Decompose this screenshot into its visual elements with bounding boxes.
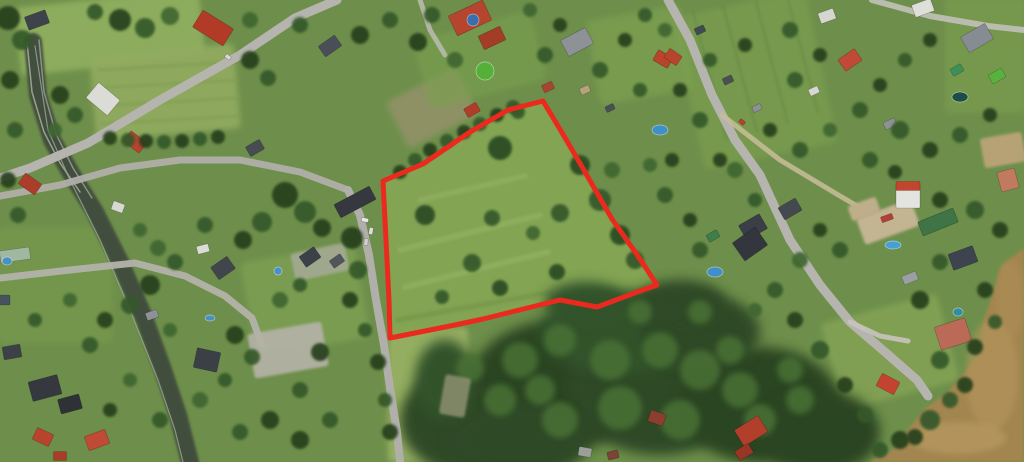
forest-canopy [544,324,576,356]
tree [787,312,803,328]
tree [342,292,358,308]
forest-canopy [628,300,652,324]
tree [713,153,727,167]
tree [967,339,983,355]
tree [811,341,829,359]
forest-canopy [502,342,538,378]
building-roof [364,238,369,245]
tree [252,212,272,232]
building-roof [361,217,369,222]
pool [952,92,968,102]
tree [931,351,949,369]
tree [87,4,103,20]
tree [447,52,463,68]
tree [692,242,708,258]
satellite-map [0,0,1024,462]
tree [673,83,687,97]
tree [313,219,331,237]
tree [139,134,153,148]
tree [665,153,679,167]
tree [526,226,540,240]
tree [643,158,657,172]
tree [82,337,98,353]
tree [873,78,887,92]
tree [244,349,260,365]
tree [618,33,632,47]
tree [292,382,308,398]
building-roof [368,227,373,235]
tree [63,293,77,307]
forest-canopy [590,340,630,380]
tree [888,165,902,179]
pool [707,267,723,277]
tree [852,102,868,118]
tree [862,152,878,168]
tree [763,123,777,137]
tree [0,172,16,188]
river-streak [996,260,1024,340]
tree [291,431,309,449]
tree [488,136,512,160]
forest-canopy [786,386,814,414]
tree [226,326,244,344]
forest-canopy [680,350,720,390]
tree [103,403,117,417]
tree [378,393,392,407]
tree [898,53,912,67]
tree [435,290,449,304]
tree [463,254,481,272]
tree [932,192,948,208]
tree [911,291,929,309]
tree [97,312,113,328]
tree [157,135,171,149]
tree [492,280,508,296]
pool [953,308,963,316]
tree [232,424,248,440]
aerial-photo [0,0,1024,462]
building-roof [0,295,10,305]
forest-canopy [642,332,678,368]
tree [657,187,673,203]
tree [242,12,258,28]
tree [983,108,997,122]
tree [163,323,177,337]
building-roof [578,446,592,457]
tree [633,83,647,97]
tree [272,292,288,308]
building-roof [2,344,22,360]
pool [476,62,494,80]
forest-canopy [542,402,578,438]
tree [813,48,827,62]
tree [727,162,743,178]
tree [923,33,937,47]
tree [551,204,569,222]
tree [638,8,652,22]
tree [537,47,553,63]
tree [382,12,398,28]
tree [748,193,762,207]
tree [192,392,208,408]
tree [484,210,500,226]
tree [703,53,717,67]
tree [193,132,207,146]
tree [952,127,968,143]
tree [549,264,565,280]
tree [767,282,783,298]
tree [683,213,697,227]
field-patch [0,228,113,343]
tree [891,121,909,139]
pool [2,257,12,265]
tree [977,282,993,298]
forest-canopy [777,357,803,383]
forest-canopy [598,386,642,430]
tree [167,254,183,270]
tree [341,227,363,249]
tree [988,315,1002,329]
building-roof [54,452,67,461]
tree [424,7,440,23]
pool [885,241,901,249]
tree [211,130,225,144]
tree [48,123,62,137]
tree [121,133,135,147]
tree [782,22,798,38]
tree [349,261,367,279]
tree [51,86,69,104]
forest-canopy [660,400,700,440]
tree [12,30,32,50]
tree [813,223,827,237]
tree [415,205,435,225]
tree [123,373,137,387]
tree [658,23,672,37]
tree [292,17,308,33]
pool [274,267,282,275]
tree [837,377,853,393]
tree [109,9,131,31]
tree [370,354,386,370]
tree [152,412,168,428]
tree [197,217,213,233]
forest-canopy [688,300,712,324]
tree [293,278,307,292]
tree [832,242,848,258]
tree [922,142,938,158]
tree [161,7,179,25]
forest-canopy [716,336,744,364]
tree [150,240,166,256]
pool [467,14,479,26]
tree [409,33,427,51]
tree [121,296,139,314]
tree [10,207,26,223]
tree [523,3,537,17]
tree [592,62,608,78]
tree [748,303,762,317]
tree [872,442,888,458]
tree [311,343,329,361]
tree [67,107,83,123]
tree [792,142,808,158]
tree [942,392,958,408]
tree [966,201,984,219]
tree [135,18,155,38]
tree [294,201,316,223]
tree [992,222,1008,238]
pool [652,125,668,135]
tree [1,71,19,89]
tree [907,429,923,445]
tree [261,411,279,429]
tree [792,252,808,268]
tree [218,373,232,387]
tree [103,131,117,145]
tree [692,112,708,128]
tree [175,134,189,148]
pool [205,315,215,321]
tree [234,231,252,249]
building-roof [896,182,920,191]
tree [553,18,567,32]
tree [957,377,973,393]
tree [382,424,398,440]
tree [351,26,369,44]
tree [857,407,873,423]
tree [358,323,372,337]
tree [823,123,837,137]
tree [738,38,752,52]
tree [932,254,948,270]
tree [891,431,909,449]
forest-canopy [722,372,758,408]
tree [272,182,298,208]
tree [28,313,42,327]
tree [133,223,147,237]
tree [241,51,259,69]
tree [322,412,338,428]
tree [260,70,276,86]
tree [920,410,940,430]
tree [140,275,160,295]
tree [604,162,620,178]
forest-canopy [484,384,516,416]
forest-canopy [525,375,555,405]
tree [7,122,23,138]
tree [787,72,803,88]
